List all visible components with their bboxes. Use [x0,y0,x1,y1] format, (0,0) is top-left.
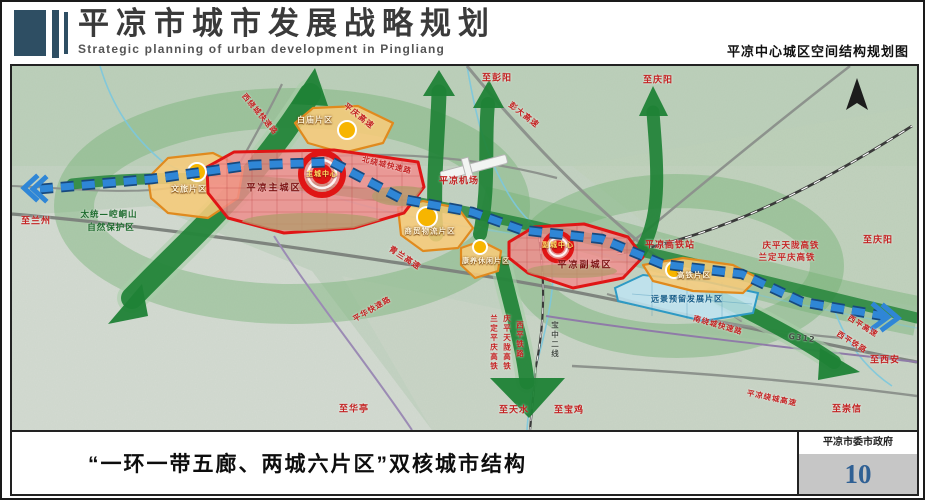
map-label: G312 [788,332,816,345]
logo-bar [64,12,68,54]
map-label: 兰定平庆高铁 [489,315,500,372]
page-title: 平凉市城市发展战略规划 [78,6,496,42]
footer-org: 平凉市委市政府 [799,432,917,454]
logo-mark-icon [14,10,84,58]
map-label: 至天水 [499,403,529,416]
map-label: 至兰州 [21,214,51,227]
logo-bar [52,10,59,58]
map-label: 庆平天陇高铁 [502,315,513,372]
map-label: 西平高速 [846,312,881,339]
map-label: 主城中心 [306,169,338,179]
map-labels: 至兰州太统—崆峒山自然保护区文旅片区平凉主城区主城中心白庙片区平庆高速西绕城快速… [12,66,917,430]
map-label: 西绕城快速路 [239,91,280,137]
map-label: 远景预留发展片区 [651,294,723,305]
map-label: 西平铁路 [515,321,526,359]
map-label: 至庆阳 [643,73,673,86]
map-label: 高铁片区 [677,270,711,281]
map-label: 青兰高速 [387,244,423,273]
map-label: 北绕城快速路 [361,153,413,176]
footer-page-block: 平凉市委市政府 10 [797,432,917,494]
map-area: 至兰州太统—崆峒山自然保护区文旅片区平凉主城区主城中心白庙片区平庆高速西绕城快速… [10,64,919,432]
map-label: 副城中心 [542,240,574,250]
map-label: 平凉高铁站 [645,238,695,251]
map-label: 商贸物流片区 [405,226,456,237]
footer: “一环一带五廊、两城六片区”双核城市结构 平凉市委市政府 10 [10,430,919,496]
map-label: 西平铁路 [835,328,870,355]
header: 平凉市城市发展战略规划 Strategic planning of urban … [10,6,915,62]
map-label: 太统—崆峒山 [80,208,137,220]
map-label: 文旅片区 [171,184,207,195]
map-label: 平凉绕城高速 [746,387,798,408]
map-label: 白庙片区 [297,115,333,126]
footer-caption: “一环一带五廊、两城六片区”双核城市结构 [88,432,527,494]
title-block: 平凉市城市发展战略规划 Strategic planning of urban … [78,6,496,56]
logo-square [14,10,46,56]
map-label: 平庆高速 [341,101,376,132]
map-sheet-caption: 平凉中心城区空间结构规划图 [727,41,909,60]
map-label: 平华快速路 [351,294,393,325]
map-label: 至彭阳 [482,71,512,84]
map-label: 庆平天陇高铁 [762,239,819,251]
map-label: 彭大高速 [506,100,541,131]
page-number: 10 [799,454,917,494]
map-label: 自然保护区 [87,221,135,233]
map-label: 至西安 [870,353,900,366]
map-label: 至崇信 [832,402,862,415]
map-label: 南绕城快速路 [692,313,744,338]
map-label: 平凉主城区 [246,181,301,194]
map-label: 宝中二线 [550,321,561,359]
page: 平凉市城市发展战略规划 Strategic planning of urban … [0,0,925,500]
map-label: 兰定平庆高铁 [758,251,815,263]
map-label: 至庆阳 [863,233,893,246]
map-label: 至华亭 [339,402,369,415]
page-subtitle-en: Strategic planning of urban development … [78,42,496,56]
map-label: 平凉副城区 [557,258,612,271]
map-label: 康养休闲片区 [462,256,510,266]
map-label: 平凉机场 [439,174,479,187]
map-label: 至宝鸡 [554,403,584,416]
